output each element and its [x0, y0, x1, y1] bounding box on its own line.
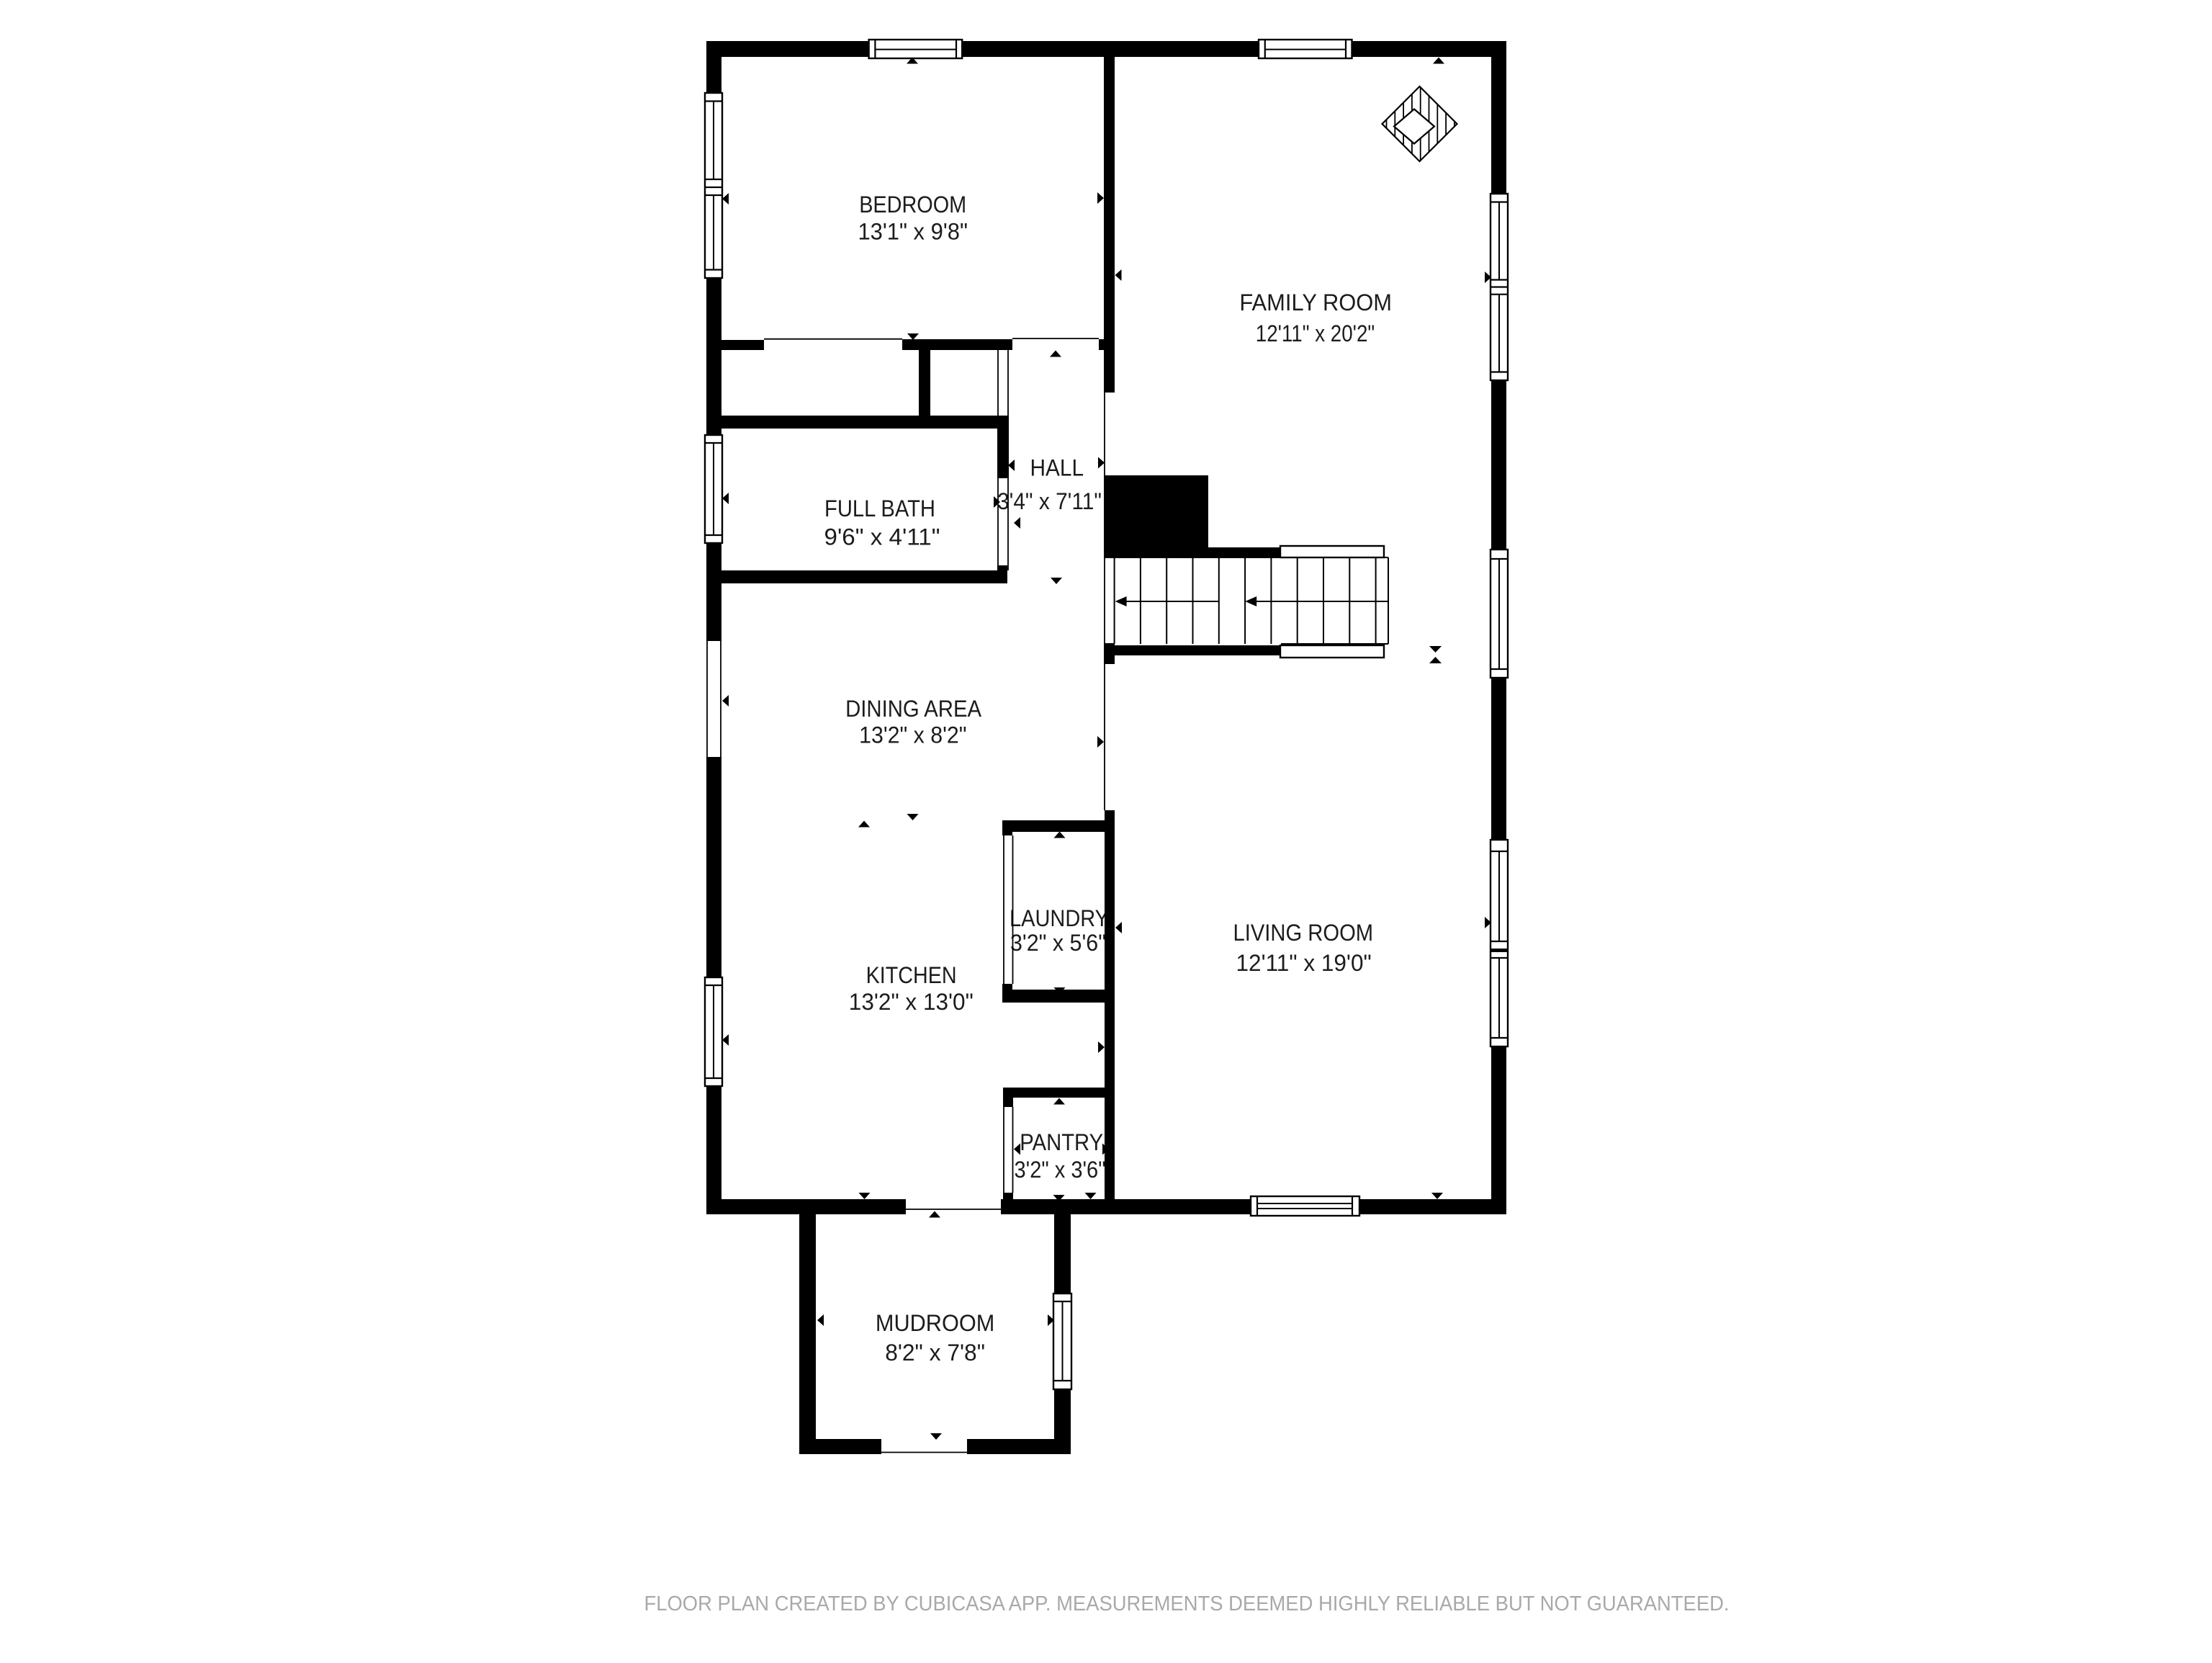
- svg-text:BEDROOM: BEDROOM: [859, 192, 966, 218]
- svg-text:3'2" x 5'6": 3'2" x 5'6": [1010, 930, 1106, 956]
- svg-text:3'4" x 7'11": 3'4" x 7'11": [997, 488, 1102, 514]
- svg-text:LAUNDRY: LAUNDRY: [1010, 905, 1109, 931]
- svg-text:LIVING ROOM: LIVING ROOM: [1233, 920, 1374, 946]
- svg-text:13'1" x 9'8": 13'1" x 9'8": [858, 219, 968, 245]
- svg-text:12'11" x 20'2": 12'11" x 20'2": [1256, 321, 1375, 346]
- svg-text:13'2" x 8'2": 13'2" x 8'2": [859, 722, 966, 748]
- svg-text:MUDROOM: MUDROOM: [876, 1310, 994, 1336]
- svg-text:9'6" x 4'11": 9'6" x 4'11": [824, 524, 940, 550]
- svg-text:FAMILY ROOM: FAMILY ROOM: [1239, 290, 1392, 315]
- svg-text:HALL: HALL: [1030, 455, 1084, 481]
- svg-text:3'2" x 3'6": 3'2" x 3'6": [1015, 1157, 1106, 1183]
- svg-text:KITCHEN: KITCHEN: [866, 962, 957, 988]
- svg-text:FULL BATH: FULL BATH: [824, 496, 935, 521]
- svg-text:13'2" x 13'0": 13'2" x 13'0": [849, 989, 974, 1015]
- svg-text:DINING AREA: DINING AREA: [845, 696, 982, 722]
- svg-text:FLOOR PLAN CREATED BY CUBICASA: FLOOR PLAN CREATED BY CUBICASA APP. MEAS…: [644, 1592, 1730, 1615]
- svg-text:8'2" x 7'8": 8'2" x 7'8": [885, 1340, 985, 1366]
- svg-text:PANTRY: PANTRY: [1020, 1129, 1103, 1155]
- svg-text:12'11" x 19'0": 12'11" x 19'0": [1236, 950, 1372, 976]
